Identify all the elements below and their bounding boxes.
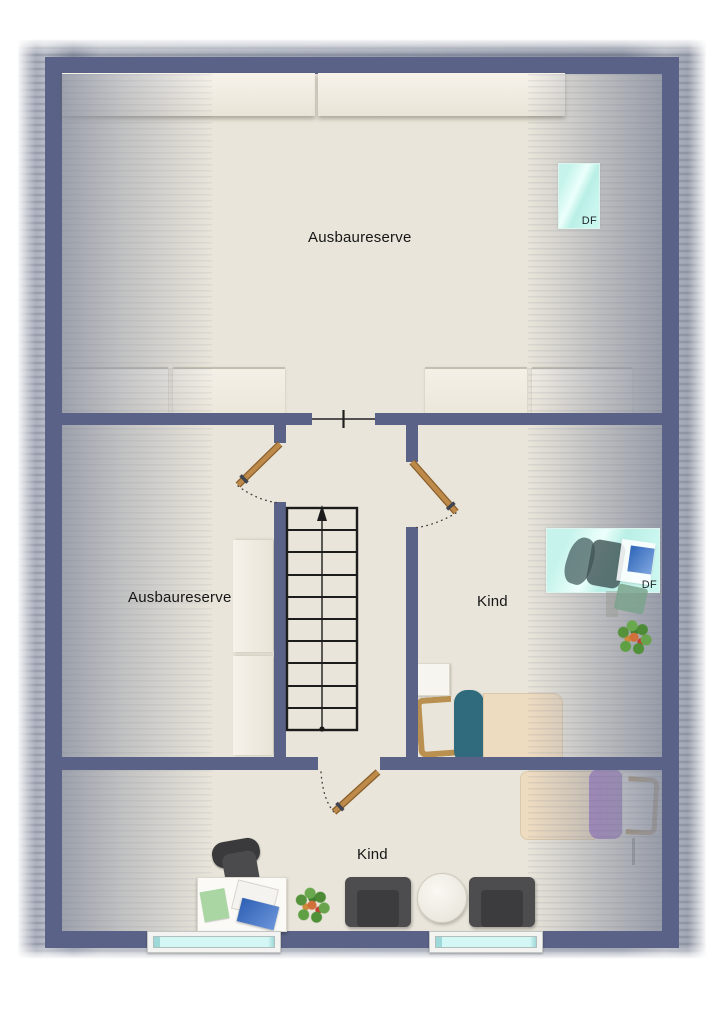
- room-label-top: Ausbaureserve: [308, 229, 412, 246]
- door-right-icon: [412, 462, 456, 528]
- floor-plan: DF DF: [0, 0, 724, 1024]
- staircase-icon: [287, 505, 357, 732]
- door-left-icon: [238, 444, 280, 503]
- door-bottom-icon: [321, 772, 378, 812]
- wall-opening-symbol: [312, 410, 375, 428]
- room-label-middle-right: Kind: [477, 593, 508, 610]
- room-label-middle-left: Ausbaureserve: [128, 589, 232, 606]
- plan-symbols: [0, 0, 724, 1024]
- room-label-bottom: Kind: [357, 846, 388, 863]
